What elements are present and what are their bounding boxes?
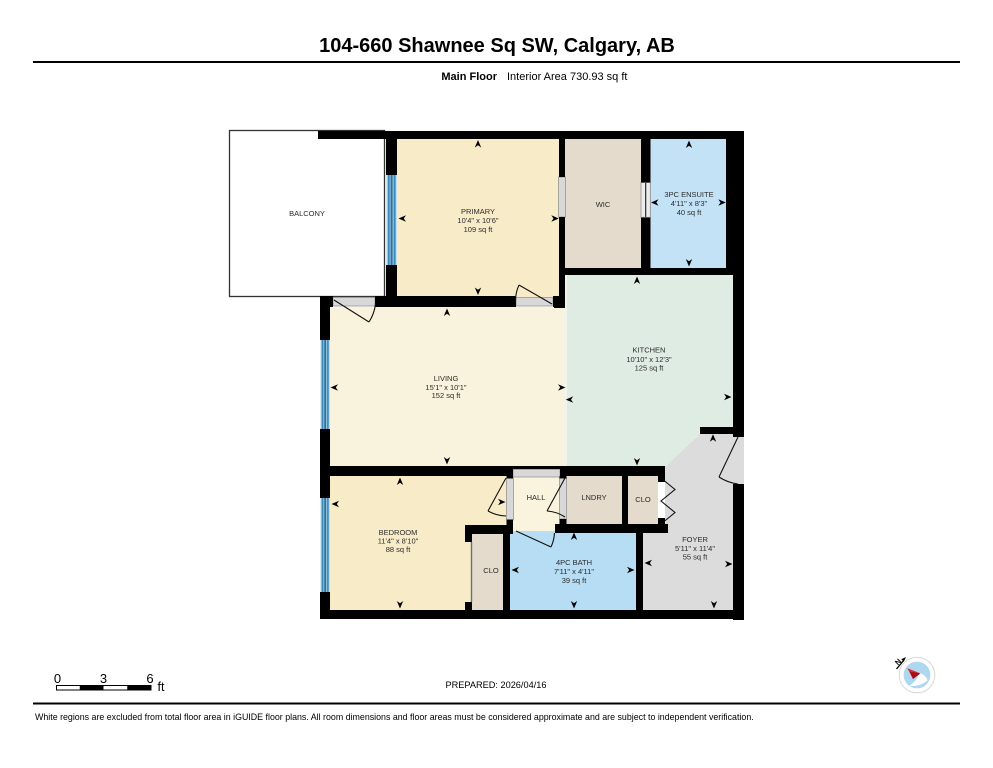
svg-text:10'4" x 10'6": 10'4" x 10'6" xyxy=(457,216,498,225)
svg-text:BALCONY: BALCONY xyxy=(289,209,325,218)
svg-text:125 sq ft: 125 sq ft xyxy=(635,363,665,372)
svg-text:3PC ENSUITE: 3PC ENSUITE xyxy=(664,190,713,199)
svg-text:CLO: CLO xyxy=(483,566,499,575)
svg-text:PRIMARY: PRIMARY xyxy=(461,207,495,216)
svg-text:PREPARED: 2026/04/16: PREPARED: 2026/04/16 xyxy=(446,680,547,690)
svg-text:3: 3 xyxy=(100,671,107,686)
svg-text:Main Floor: Main Floor xyxy=(441,71,497,83)
svg-text:109 sq ft: 109 sq ft xyxy=(464,225,494,234)
svg-text:6: 6 xyxy=(146,671,153,686)
svg-text:ft: ft xyxy=(158,680,165,694)
svg-text:Interior Area 730.93 sq ft: Interior Area 730.93 sq ft xyxy=(507,71,627,83)
svg-text:4PC BATH: 4PC BATH xyxy=(556,558,592,567)
svg-text:104-660 Shawnee Sq SW, Calgary: 104-660 Shawnee Sq SW, Calgary, AB xyxy=(319,35,675,57)
svg-text:0: 0 xyxy=(54,671,61,686)
svg-text:LNDRY: LNDRY xyxy=(581,493,606,502)
svg-text:CLO: CLO xyxy=(635,495,651,504)
svg-text:39 sq ft: 39 sq ft xyxy=(562,576,588,585)
svg-text:152 sq ft: 152 sq ft xyxy=(432,391,462,400)
svg-text:HALL: HALL xyxy=(527,493,546,502)
svg-text:88 sq ft: 88 sq ft xyxy=(386,545,412,554)
svg-text:FOYER: FOYER xyxy=(682,535,708,544)
svg-text:7'11" x 4'11": 7'11" x 4'11" xyxy=(554,567,594,576)
svg-text:4'11" x 8'3": 4'11" x 8'3" xyxy=(671,199,708,208)
svg-text:White regions are excluded fro: White regions are excluded from total fl… xyxy=(35,712,754,722)
svg-text:40 sq ft: 40 sq ft xyxy=(677,208,703,217)
svg-text:LIVING: LIVING xyxy=(434,374,459,383)
svg-text:KITCHEN: KITCHEN xyxy=(633,345,666,354)
svg-text:WIC: WIC xyxy=(596,200,611,209)
svg-text:55 sq ft: 55 sq ft xyxy=(683,553,709,562)
